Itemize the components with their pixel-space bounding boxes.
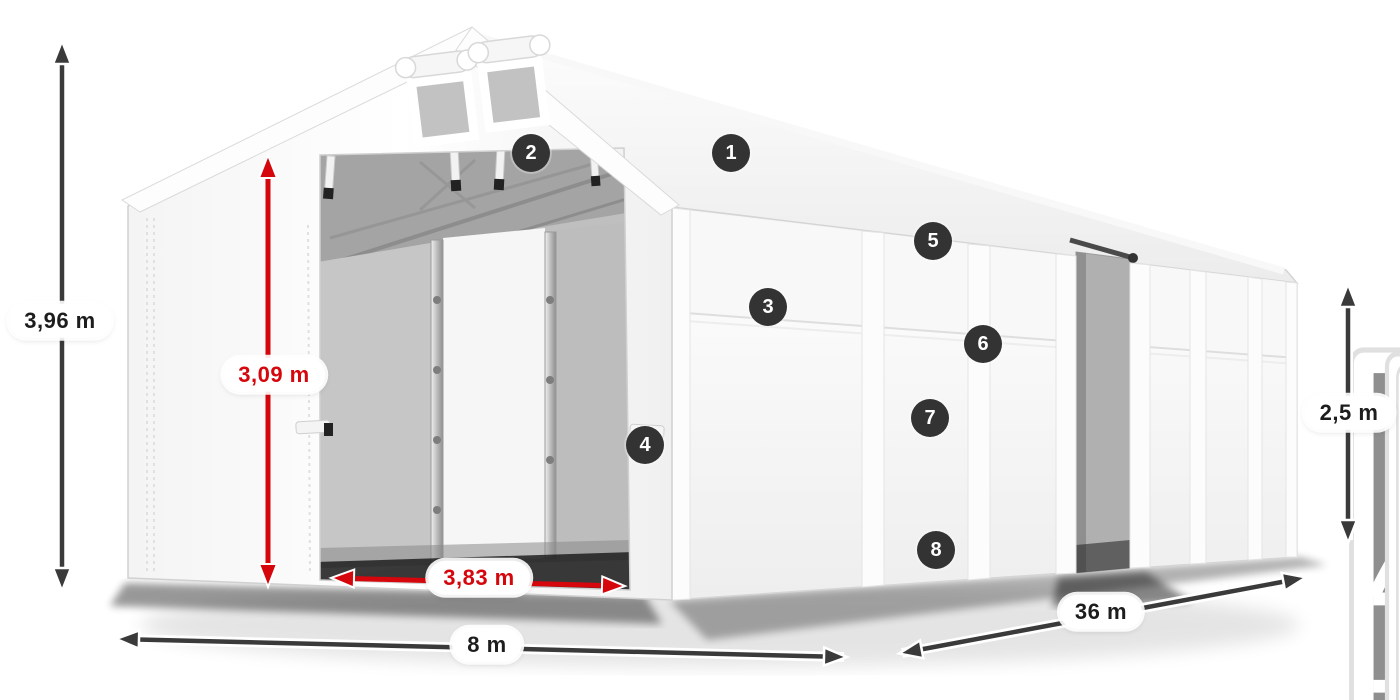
label-entrance-height: 3,09 m [223,358,325,392]
label-length: 36 m [1060,595,1142,629]
callout-badge-5[interactable]: 5 [914,222,952,260]
side-doorway [1070,240,1138,573]
tent-illustration [0,0,1400,700]
label-total-height: 3,96 m [9,304,111,338]
callout-badge-3[interactable]: 3 [749,288,787,326]
callout-badge-7[interactable]: 7 [911,399,949,437]
label-side-height: 2,5 m [1305,396,1394,430]
callout-badge-8[interactable]: 8 [917,531,955,569]
callout-badge-2[interactable]: 2 [512,134,550,172]
callout-badge-6[interactable]: 6 [964,325,1002,363]
label-entrance-width: 3,83 m [428,561,530,595]
callout-badge-4[interactable]: 4 [626,426,664,464]
label-width: 8 m [452,628,521,662]
callout-badge-1[interactable]: 1 [712,134,750,172]
tent-dimensions-diagram: 3,96 m 3,09 m 3,83 m 8 m 36 m 2,5 m 1 2 … [0,0,1400,700]
